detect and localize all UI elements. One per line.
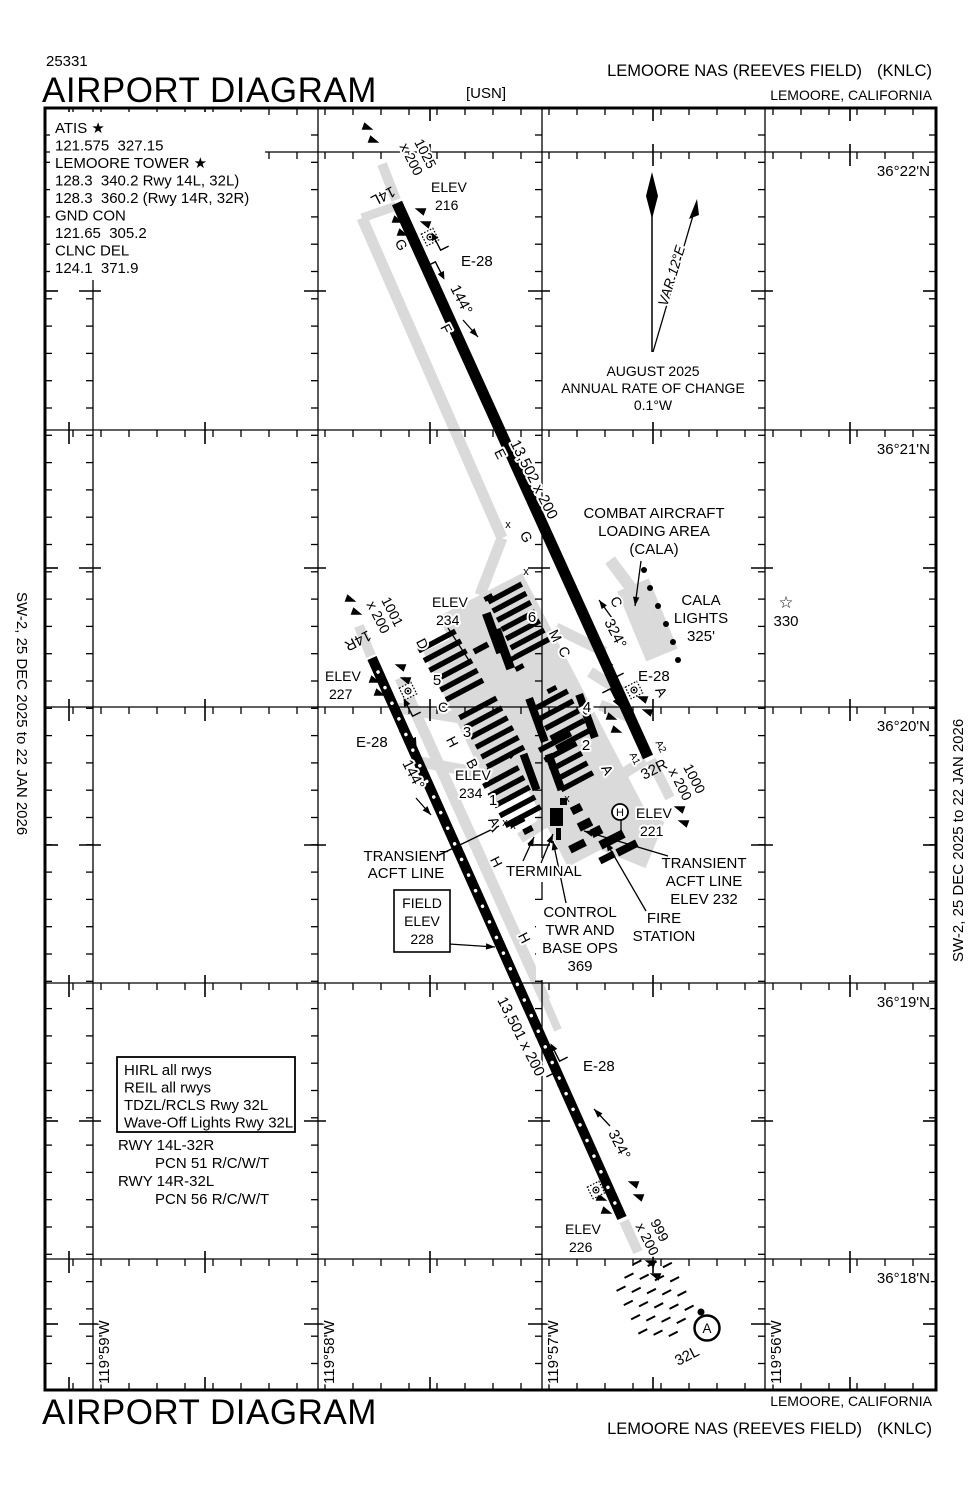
transient-west-callout: TRANSIENT ACFT LINE [363,848,448,882]
svg-text:HIRL all rwys: HIRL all rwys [124,1062,212,1079]
svg-text:FIRE: FIRE [647,910,681,927]
overrun-14r-dimension: 1001 x 200 [364,591,407,636]
transient-east-callout: TRANSIENT ACFT LINE ELEV 232 [661,855,746,908]
svg-text:(CALA): (CALA) [629,541,678,558]
airport-diagram-page: 25331 AIRPORT DIAGRAM [USN] LEMOORE NAS … [0,0,979,1500]
svg-text:2: 2 [582,737,590,754]
closed-marker-x: x [523,566,529,578]
svg-text:A: A [702,1321,711,1336]
svg-text:ATIS ★: ATIS ★ [55,120,105,137]
svg-text:CLNC DEL: CLNC DEL [55,243,129,260]
svg-text:BASE OPS: BASE OPS [542,940,618,957]
terminal-callout: TERMINAL [506,863,582,880]
svg-text:1: 1 [489,792,497,809]
closed-marker-x: x [502,817,508,829]
svg-text:ELEV: ELEV [432,594,468,610]
closed-marker-x: x [564,793,570,805]
svg-text:ELEV 232: ELEV 232 [670,891,738,908]
svg-text:121.575 327.15: 121.575 327.15 [55,138,163,155]
svg-text:234: 234 [459,785,483,801]
svg-text:C: C [607,594,626,610]
svg-text:ACFT LINE: ACFT LINE [666,873,742,890]
svg-text:TWR AND: TWR AND [545,922,614,939]
svg-text:TRANSIENT: TRANSIENT [661,855,746,872]
control-tower-callout: CONTROL TWR AND BASE OPS 369 [542,904,618,975]
closed-marker-x: x [505,519,511,531]
cala-lights-callout: CALA LIGHTS 325' [674,592,728,645]
beacon-star-icon: ☆ [779,594,794,612]
svg-text:325': 325' [687,628,715,645]
variation-label: VAR 12°E [655,243,689,308]
svg-text:119°59'W: 119°59'W [96,1320,113,1384]
branch-label: [USN] [466,85,506,102]
svg-text:ELEV: ELEV [325,668,361,684]
footer-airport-name: LEMOORE NAS (REEVES FIELD) [607,1420,862,1438]
heading-324-bottom: 324° [604,1127,633,1162]
overrun-14l-dimension: 1025 x 200 [397,133,440,178]
svg-text:32L: 32L [672,1343,702,1370]
north-arrow-icon [646,172,658,352]
svg-text:ACFT LINE: ACFT LINE [368,865,444,882]
svg-text:RWY 14L-32R: RWY 14L-32R [118,1137,214,1154]
arresting-gear-label-3: E-28 [356,734,388,751]
approach-light-bars-icon [609,1249,701,1348]
svg-text:ELEV: ELEV [565,1221,601,1237]
svg-text:RWY 14R-32L: RWY 14R-32L [118,1173,214,1190]
svg-text:119°57'W: 119°57'W [545,1320,562,1384]
svg-text:324°: 324° [604,1127,633,1162]
svg-text:221: 221 [640,823,664,839]
airport-name: LEMOORE NAS (REEVES FIELD) [607,62,862,80]
elev-226: ELEV 226 [565,1221,601,1255]
svg-text:6: 6 [528,609,536,626]
svg-text:SW-2, 25 DEC 2025 to 22 JAN 20: SW-2, 25 DEC 2025 to 22 JAN 2026 [950,719,967,962]
footer-location: LEMOORE, CALIFORNIA [770,1393,932,1409]
svg-text:228: 228 [410,931,434,947]
elev-216: ELEV 216 [431,179,467,213]
svg-text:GND CON: GND CON [55,208,126,225]
svg-text:ELEV: ELEV [431,179,467,195]
lighting-info-box: HIRL all rwys REIL all rwys TDZL/RCLS Rw… [117,1057,295,1132]
arresting-gear-label-4: E-28 [583,1058,615,1075]
svg-text:227: 227 [329,686,353,702]
svg-text:121.65 305.2: 121.65 305.2 [55,225,147,242]
svg-text:216: 216 [435,197,459,213]
svg-text:STATION: STATION [633,928,696,945]
svg-text:ELEV: ELEV [636,805,672,821]
svg-text:36°19'N: 36°19'N [877,994,930,1011]
svg-text:36°22'N: 36°22'N [877,163,930,180]
svg-text:G: G [517,528,536,545]
svg-text:E: E [491,446,509,462]
closed-marker-x: x [510,820,516,832]
diagram-canvas: 25331 AIRPORT DIAGRAM [USN] LEMOORE NAS … [0,0,979,1500]
beacon-elevation: 330 [773,613,798,630]
svg-text:5: 5 [433,672,441,689]
svg-text:234: 234 [436,612,460,628]
svg-text:119°58'W: 119°58'W [321,1320,338,1384]
variation-rate: ANNUAL RATE OF CHANGE [561,380,745,396]
svg-text:A2: A2 [653,739,669,755]
svg-text:4: 4 [583,699,591,716]
svg-text:226: 226 [569,1239,593,1255]
svg-text:PCN 51 R/C/W/T: PCN 51 R/C/W/T [155,1155,269,1172]
svg-text:Wave-Off Lights Rwy 32L: Wave-Off Lights Rwy 32L [124,1115,293,1132]
edge-left-label: SW-2, 25 DEC 2025 to 22 JAN 2026 [13,592,30,835]
svg-text:128.3 340.2 Rwy 14L, 32L): 128.3 340.2 Rwy 14L, 32L) [55,173,239,190]
svg-text:SW-2, 25 DEC 2025 to 22 JAN 20: SW-2, 25 DEC 2025 to 22 JAN 2026 [13,592,30,835]
svg-text:TRANSIENT: TRANSIENT [363,848,448,865]
edge-right-label: SW-2, 25 DEC 2025 to 22 JAN 2026 [950,719,967,962]
field-elevation-box: FIELD ELEV 228 [394,890,450,952]
svg-text:H: H [616,807,624,819]
svg-text:C: C [438,699,448,715]
svg-text:ELEV: ELEV [404,913,440,929]
footer-title: AIRPORT DIAGRAM [42,1393,377,1432]
svg-text:119°56'W: 119°56'W [768,1320,785,1384]
svg-text:REIL all rwys: REIL all rwys [124,1080,211,1097]
svg-text:CONTROL: CONTROL [543,904,616,921]
arresting-gear-label-1: E-28 [461,253,493,270]
arresting-gear-label-2: E-28 [638,668,670,685]
footer-airport-icao: (KNLC) [877,1420,932,1438]
fire-station-callout: FIRE STATION [633,910,696,945]
pcn-info: RWY 14L-32R PCN 51 R/C/W/T RWY 14R-32L P… [118,1137,269,1208]
svg-text:COMBAT AIRCRAFT: COMBAT AIRCRAFT [583,505,724,522]
approach-light-system-icon: A [695,1309,720,1341]
page-title: AIRPORT DIAGRAM [42,71,377,110]
svg-text:A: A [652,684,671,700]
svg-text:124.1 371.9: 124.1 371.9 [55,260,138,277]
variation-date: AUGUST 2025 [606,363,699,379]
svg-text:3: 3 [463,724,471,741]
svg-text:G: G [392,236,411,253]
svg-text:36°21'N: 36°21'N [877,441,930,458]
svg-text:LEMOORE TOWER ★: LEMOORE TOWER ★ [55,155,207,172]
airport-location: LEMOORE, CALIFORNIA [770,87,932,103]
svg-text:36°18'N: 36°18'N [877,1270,930,1287]
svg-text:ELEV: ELEV [455,767,491,783]
svg-text:369: 369 [567,958,592,975]
svg-text:TDZL/RCLS Rwy 32L: TDZL/RCLS Rwy 32L [124,1097,268,1114]
cala-callout: COMBAT AIRCRAFT LOADING AREA (CALA) [583,505,724,558]
airport-icao: (KNLC) [877,62,932,80]
svg-text:PCN 56 R/C/W/T: PCN 56 R/C/W/T [155,1191,269,1208]
svg-text:LOADING AREA: LOADING AREA [598,523,710,540]
latitude-labels: 36°22'N 36°21'N 36°20'N 36°19'N 36°18'N [877,163,930,1287]
chart-id: 25331 [46,53,88,70]
variation-rate-value: 0.1°W [634,397,673,413]
svg-text:CALA: CALA [681,592,720,609]
runway-32l-label: 32L [672,1343,702,1370]
svg-text:128.3 360.2 (Rwy 14R, 32R): 128.3 360.2 (Rwy 14R, 32R) [55,190,249,207]
elev-227: ELEV 227 [325,668,361,702]
svg-text:LIGHTS: LIGHTS [674,610,728,627]
svg-text:H: H [443,734,462,750]
svg-text:36°20'N: 36°20'N [877,718,930,735]
svg-text:FIELD: FIELD [402,895,442,911]
